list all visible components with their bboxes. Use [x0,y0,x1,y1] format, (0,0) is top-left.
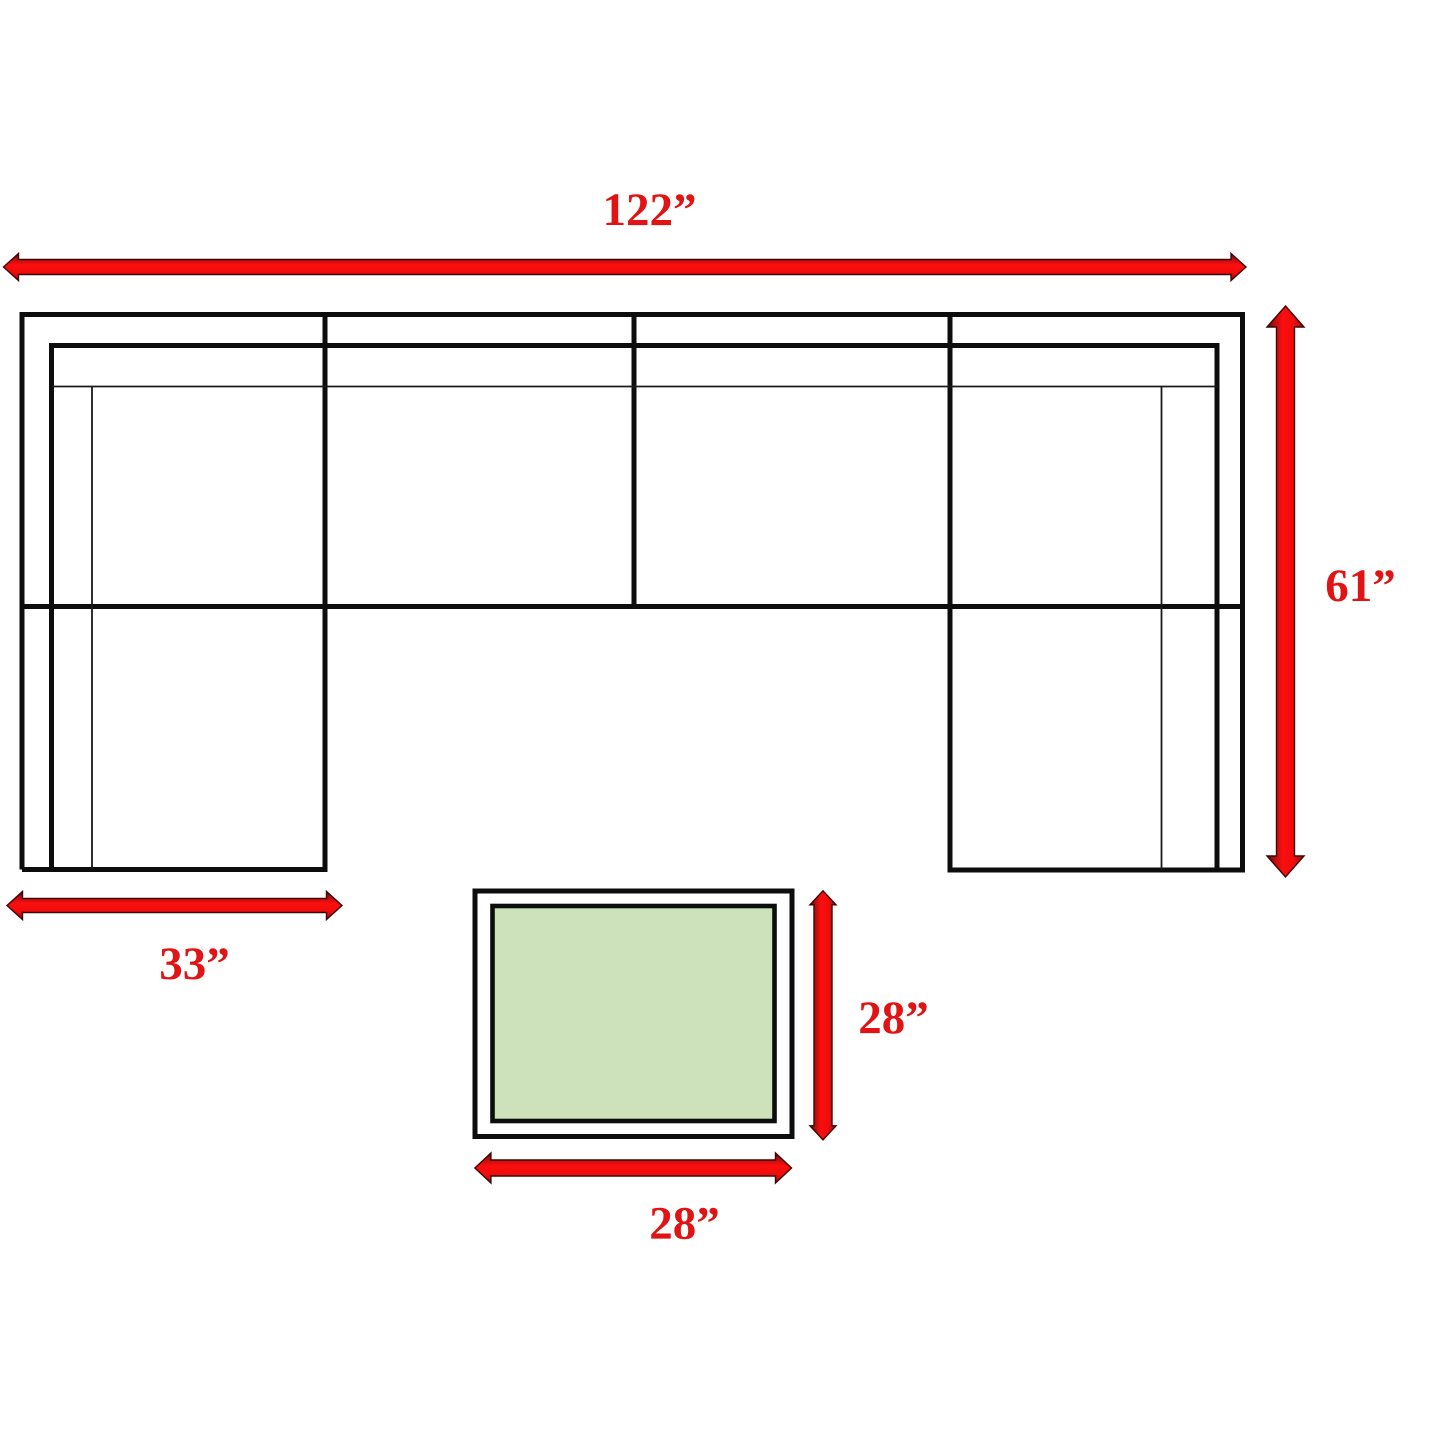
svg-text:61”: 61” [1325,560,1396,612]
svg-text:33”: 33” [159,938,230,990]
svg-text:28”: 28” [649,1198,720,1250]
svg-text:28”: 28” [858,992,929,1044]
svg-text:122”: 122” [603,184,697,236]
